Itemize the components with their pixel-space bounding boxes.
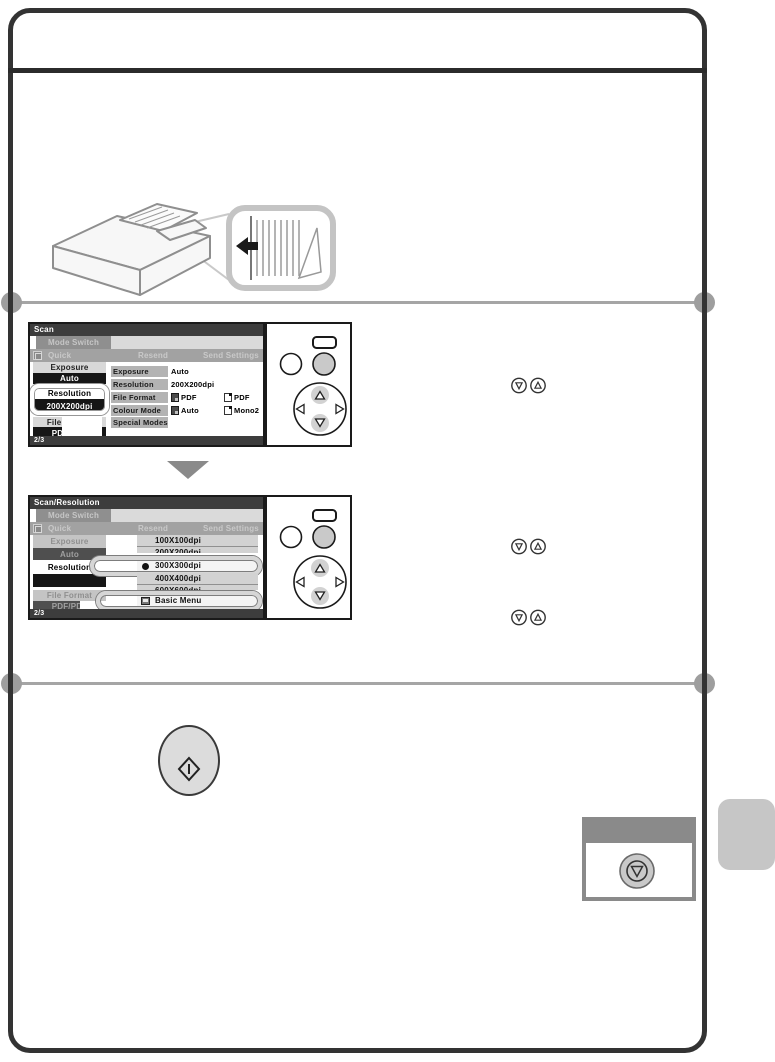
mode-switch-bar [111, 336, 263, 349]
down-key-hint-icon [512, 610, 526, 624]
row-label: Special Modes [111, 417, 168, 428]
page-index-tab [718, 799, 775, 870]
quick-icon [33, 524, 42, 533]
resolution-screen: Scan/Resolution Mode Switch Quick Resend… [30, 497, 263, 618]
mode-switch-button[interactable]: Mode Switch [36, 336, 111, 349]
tab-quick[interactable]: Quick [48, 349, 71, 362]
row-value-2: PDF [234, 393, 250, 402]
row-value: PDF [181, 393, 197, 402]
down-key-hint-icon [512, 378, 526, 392]
step-bullet-2-right [694, 673, 715, 694]
file-format-icon-dark [171, 393, 179, 402]
panel-screenshot-scan: Scan Mode Switch Quick Resend Send Setti… [28, 322, 352, 447]
mode-switch-bar [111, 509, 263, 522]
exposure-label[interactable]: Exposure [33, 362, 106, 373]
down-key-hint-icon [512, 539, 526, 553]
stop-button-graphic [586, 843, 692, 897]
list-item-400dpi[interactable]: 400X400dpi [137, 573, 258, 585]
basic-menu-ring [96, 591, 262, 611]
up-key-hint-icon [531, 378, 545, 392]
row-label: Exposure [111, 366, 168, 377]
key-hint-pair-1 [511, 377, 547, 394]
step-transition-arrow [167, 461, 209, 479]
stop-note-panel [582, 817, 696, 901]
key-hint-pair-3 [511, 609, 547, 626]
ok-key[interactable] [313, 526, 335, 548]
table-row: Colour Mode Auto Mono2 [111, 405, 263, 416]
table-row: Exposure Auto [111, 366, 263, 377]
step-bullet-1-left [1, 292, 22, 313]
start-button[interactable] [158, 725, 220, 796]
tab-bar: Quick Resend Send Settings [30, 522, 263, 535]
step-bullet-1-right [694, 292, 715, 313]
list-item-100dpi[interactable]: 100X100dpi [137, 535, 258, 547]
exposure-label[interactable]: Exposure [33, 535, 106, 548]
display-indicator [313, 510, 336, 521]
section-divider-1 [13, 301, 702, 304]
display-indicator [313, 337, 336, 348]
tab-quick[interactable]: Quick [48, 522, 71, 535]
panel-screenshot-resolution: Scan/Resolution Mode Switch Quick Resend… [28, 495, 352, 620]
up-key-hint-icon [531, 610, 545, 624]
header-separator-rule [8, 68, 707, 73]
row-label: Resolution [111, 379, 168, 390]
scan-screen: Scan Mode Switch Quick Resend Send Setti… [30, 324, 263, 445]
exposure-value[interactable]: Auto [33, 373, 106, 384]
row-label: Colour Mode [111, 405, 168, 416]
key-pad-area [267, 497, 350, 618]
tab-send-settings[interactable]: Send Settings [203, 522, 259, 535]
tab-resend[interactable]: Resend [138, 522, 168, 535]
row-value: 200X200dpi [171, 380, 214, 389]
mode-switch-button[interactable]: Mode Switch [36, 509, 111, 522]
colour-mode-icon-dark [171, 406, 179, 415]
stop-button[interactable] [620, 854, 654, 888]
tab-resend[interactable]: Resend [138, 349, 168, 362]
up-key-hint-icon [531, 539, 545, 553]
step-bullet-2-left [1, 673, 22, 694]
page-indicator: 2/3 [30, 436, 263, 445]
screen-title: Scan [30, 324, 263, 336]
quick-icon [33, 351, 42, 360]
key-pad-area [267, 324, 350, 445]
colour-mode-icon-outline [224, 406, 232, 415]
row-label: File Format [111, 392, 168, 403]
row-value: Auto [181, 406, 199, 415]
resolution-value-bar [33, 574, 106, 587]
resolution-highlight-ring [30, 384, 109, 415]
table-row: File Format PDF PDF [111, 392, 263, 403]
table-row: Resolution 200X200dpi [111, 379, 263, 390]
key-hint-pair-2 [511, 538, 547, 555]
page-indicator: 2/3 [30, 609, 263, 618]
ok-key[interactable] [313, 353, 335, 375]
tab-bar: Quick Resend Send Settings [30, 349, 263, 362]
tab-send-settings[interactable]: Send Settings [203, 349, 259, 362]
table-row: Special Modes [111, 417, 263, 428]
printer-illustration [45, 198, 337, 298]
file-format-icon-outline [224, 393, 232, 402]
manual-page: Scan Mode Switch Quick Resend Send Setti… [0, 0, 775, 1062]
screen-title: Scan/Resolution [30, 497, 263, 509]
row-value-2: Mono2 [234, 406, 259, 415]
stop-panel-header [586, 821, 692, 843]
back-key[interactable] [281, 354, 302, 375]
back-key[interactable] [281, 527, 302, 548]
section-divider-2 [13, 682, 702, 685]
row-value: Auto [171, 367, 189, 376]
start-button-icon [160, 727, 218, 794]
